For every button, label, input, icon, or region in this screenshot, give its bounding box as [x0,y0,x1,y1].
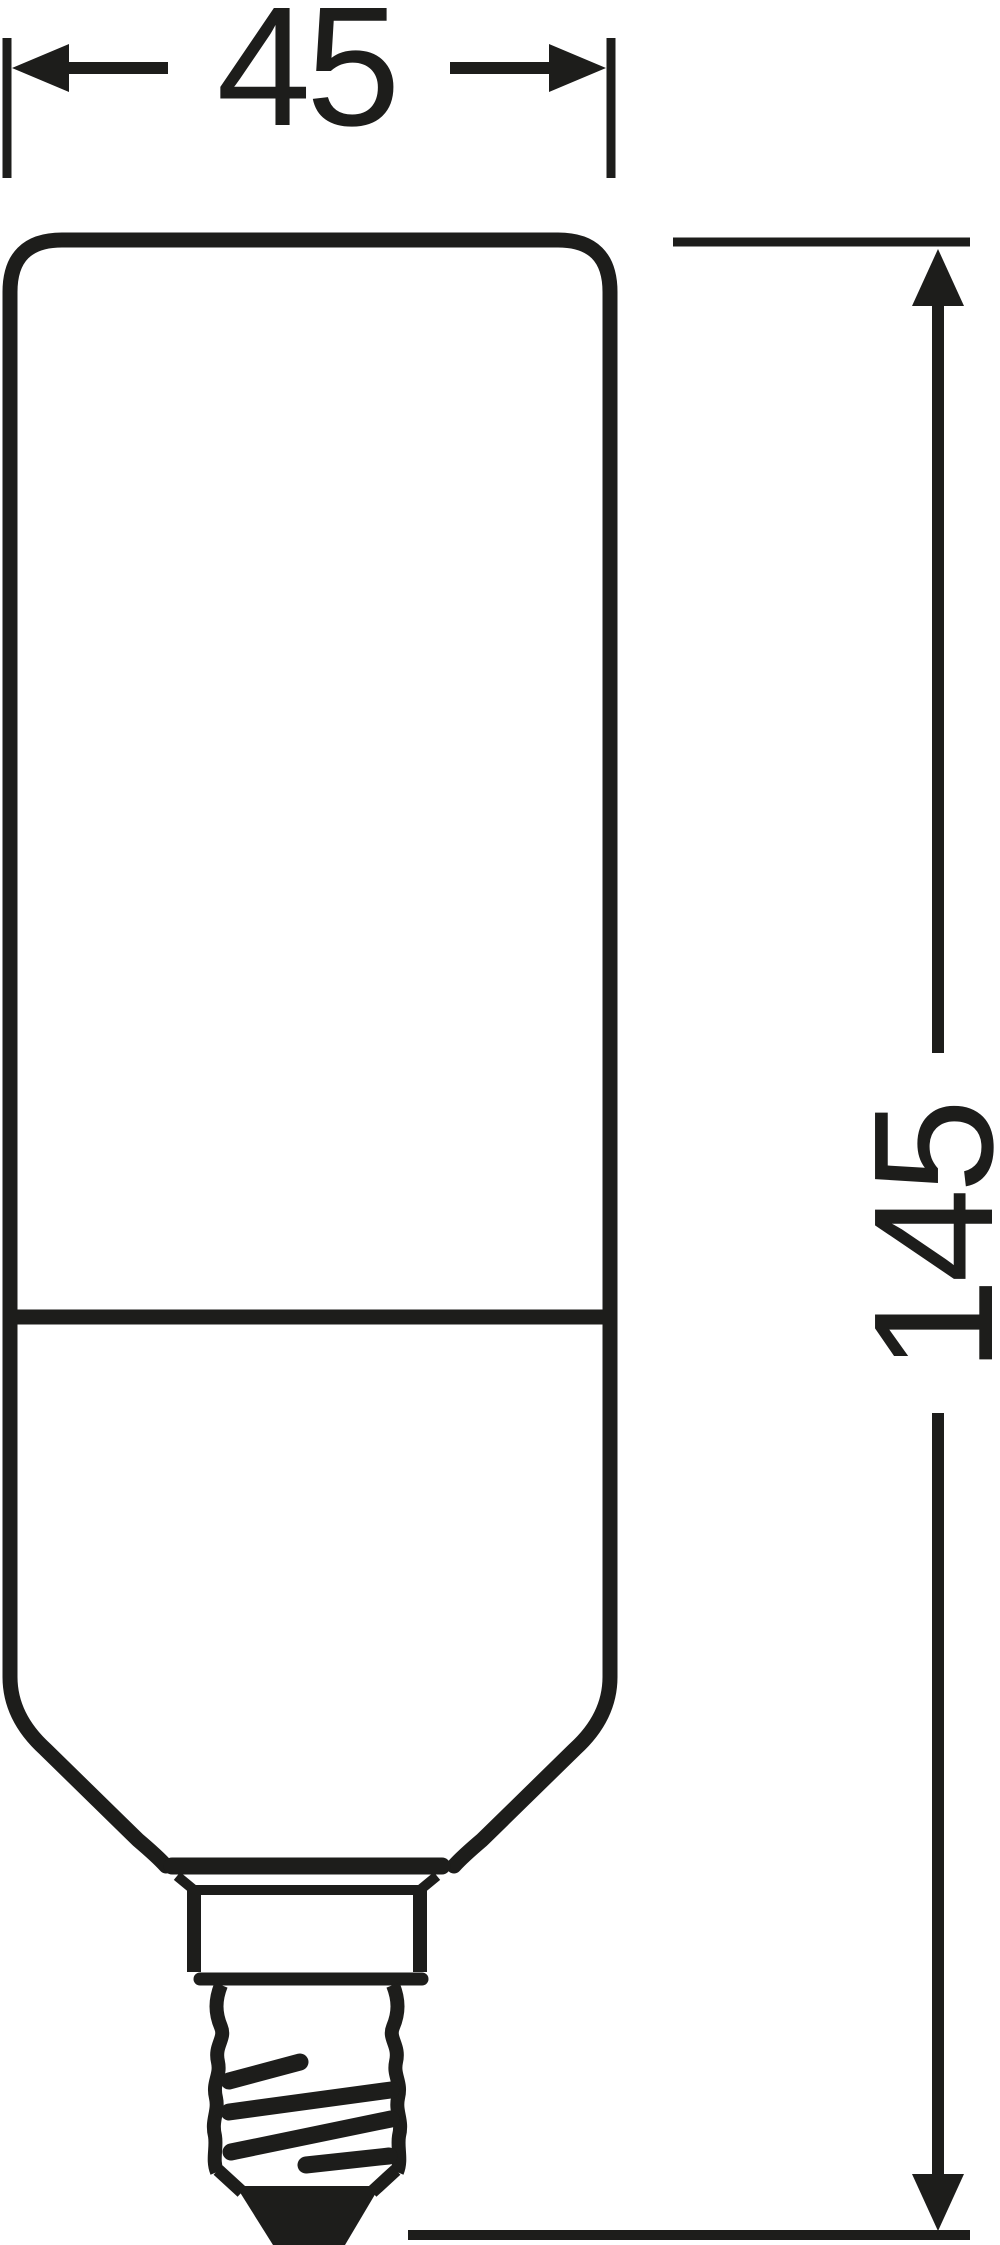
height-arrowhead-up [912,249,964,306]
diagram-fills: 45 145 [12,0,1000,2245]
thread-right-edge [392,1985,400,2172]
dimension-diagram-canvas: 45 145 [0,0,1000,2245]
lamp-dimension-diagram: 45 145 [0,0,1000,2245]
thread-stroke-1 [229,2062,300,2081]
thread-stroke-3 [231,2119,391,2152]
base-insulator-line [177,1876,437,1890]
base-contact-tip [236,2186,380,2245]
diagram-linework [7,38,970,2235]
thread-stroke-4 [306,2156,389,2165]
width-arrowhead-right [549,44,606,92]
width-arrowhead-left [12,44,69,92]
thread-stroke-2 [229,2090,391,2112]
bulb-body-outline [10,240,610,1866]
height-dimension-label: 145 [839,1104,1000,1373]
height-arrowhead-down [912,2174,964,2231]
width-dimension-label: 45 [216,0,395,162]
